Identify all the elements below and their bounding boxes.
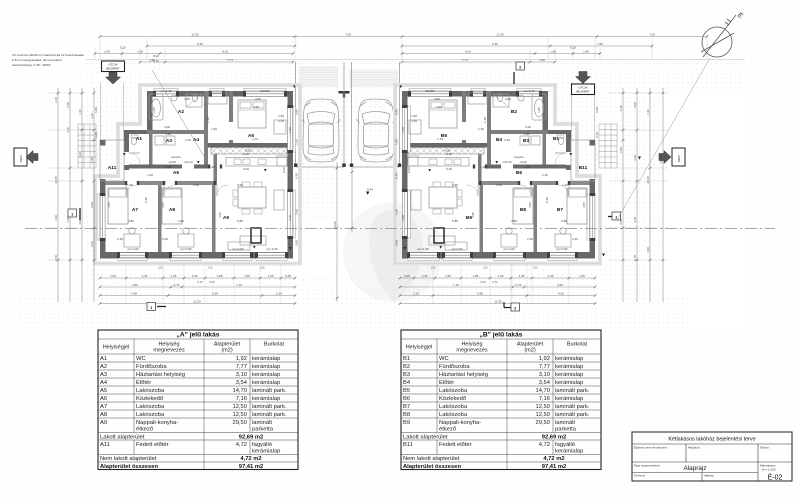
svg-text:3,20: 3,20 [633, 155, 637, 161]
svg-text:KERT: KERT [19, 155, 23, 163]
svg-text:6,70: 6,70 [54, 255, 58, 261]
svg-text:6,20: 6,20 [446, 167, 452, 171]
svg-text:A3: A3 [100, 372, 107, 378]
svg-text:BEJÁRAT: BEJÁRAT [576, 90, 589, 94]
svg-text:4,85: 4,85 [471, 212, 475, 218]
svg-text:0,90: 0,90 [395, 240, 399, 246]
svg-text:É-02: É-02 [768, 473, 783, 482]
svg-text:4,90: 4,90 [54, 215, 58, 221]
svg-text:laminált park.: laminált park. [555, 388, 590, 394]
svg-text:A9: A9 [223, 215, 229, 221]
svg-text:2,05: 2,05 [90, 241, 94, 247]
svg-text:2,35: 2,35 [548, 274, 554, 278]
svg-text:1,65: 1,65 [579, 274, 585, 278]
svg-text:BEJÁRAT: BEJÁRAT [106, 67, 119, 71]
svg-text:Nem lakott alapterület: Nem lakott alapterület [403, 456, 460, 462]
svg-text:A4: A4 [100, 380, 108, 386]
svg-text:97,41 m2: 97,41 m2 [542, 464, 567, 470]
svg-text:5,90: 5,90 [477, 291, 483, 295]
svg-text:B5: B5 [403, 388, 410, 394]
svg-text:2,10: 2,10 [185, 138, 191, 142]
svg-text:1,30: 1,30 [211, 127, 217, 131]
svg-text:2,10: 2,10 [243, 152, 249, 156]
svg-text:Lakott alapterület: Lakott alapterület [403, 434, 448, 440]
svg-text:A11: A11 [100, 442, 110, 448]
svg-text:kerámialap: kerámialap [252, 448, 280, 454]
svg-text:0,70: 0,70 [174, 283, 180, 287]
svg-text:1,10: 1,10 [437, 137, 443, 141]
svg-text:1,50: 1,50 [550, 49, 556, 53]
svg-text:pm 2,40: pm 2,40 [418, 247, 429, 251]
svg-text:7,71: 7,71 [462, 58, 468, 62]
svg-text:konyha: konyha [171, 155, 181, 159]
svg-text:4,60: 4,60 [434, 97, 440, 101]
svg-text:Burkolat: Burkolat [264, 342, 285, 348]
svg-text:3,54: 3,54 [236, 380, 248, 386]
svg-text:1,50: 1,50 [260, 267, 265, 270]
svg-text:8,10: 8,10 [465, 49, 471, 53]
svg-text:Fürdőszoba: Fürdőszoba [136, 364, 167, 370]
svg-text:1,60: 1,60 [539, 58, 545, 62]
svg-text:0,70: 0,70 [197, 280, 203, 284]
svg-text:1,40: 1,40 [127, 183, 133, 187]
svg-text:pm 0,90: pm 0,90 [557, 247, 568, 251]
svg-text:laminált park.: laminált park. [252, 412, 287, 418]
svg-text:1,10: 1,10 [252, 137, 258, 141]
svg-text:1,50: 1,50 [295, 139, 299, 145]
svg-text:1,65: 1,65 [110, 274, 116, 278]
svg-text:4,90: 4,90 [646, 247, 650, 253]
svg-text:4,60: 4,60 [436, 105, 442, 109]
svg-text:7,77: 7,77 [236, 364, 247, 370]
svg-text:1,65: 1,65 [445, 274, 451, 278]
svg-text:12,30: 12,30 [496, 32, 504, 36]
svg-text:1,40: 1,40 [562, 183, 568, 187]
svg-text:4,50: 4,50 [132, 283, 138, 287]
svg-text:4,60: 4,60 [255, 97, 261, 101]
svg-text:2,40: 2,40 [288, 215, 292, 221]
svg-text:B2: B2 [511, 109, 517, 115]
svg-text:2,40: 2,40 [395, 209, 399, 215]
svg-text:B11: B11 [403, 442, 413, 448]
svg-text:4,75: 4,75 [66, 127, 70, 133]
svg-text:Közlekedő: Közlekedő [136, 396, 163, 402]
svg-text:+10,10: +10,10 [183, 160, 193, 164]
svg-text:12,30: 12,30 [193, 299, 201, 303]
svg-text:7,77: 7,77 [539, 364, 550, 370]
svg-text:Előtér: Előtér [136, 380, 151, 386]
svg-text:90/150: 90/150 [425, 89, 435, 93]
svg-text:B9: B9 [403, 420, 410, 426]
svg-text:2,60: 2,60 [619, 147, 623, 153]
svg-text:0,90: 0,90 [452, 183, 458, 187]
svg-text:étkező: étkező [439, 426, 456, 432]
svg-text:1,35: 1,35 [268, 274, 274, 278]
svg-text:Lakószoba: Lakószoba [136, 388, 165, 394]
svg-text:1,40: 1,40 [209, 165, 215, 169]
svg-text:29,50: 29,50 [535, 420, 550, 426]
svg-text:0,30: 0,30 [282, 167, 286, 173]
svg-text:Alapterület összesen: Alapterület összesen [100, 464, 158, 470]
svg-text:1,50: 1,50 [278, 114, 284, 118]
svg-text:7,10: 7,10 [453, 283, 459, 287]
svg-text:ø 8 mm kengyelekkel, 20 cm-enk: ø 8 mm kengyelekkel, 20 cm-enként [12, 58, 62, 62]
svg-text:kerámialap: kerámialap [555, 380, 583, 386]
svg-text:1,50: 1,50 [483, 267, 488, 270]
svg-text:0,20: 0,20 [480, 280, 486, 284]
svg-text:2,35: 2,35 [142, 274, 148, 278]
svg-text:3,16: 3,16 [646, 109, 650, 115]
svg-text:Aláírás:: Aláírás: [704, 474, 714, 478]
svg-text:kerámialap: kerámialap [252, 372, 280, 378]
svg-text:4,72 m2: 4,72 m2 [240, 456, 261, 462]
svg-text:2,00: 2,00 [633, 102, 637, 108]
svg-text:Tervező:: Tervező: [634, 474, 646, 478]
svg-text:Közlekedő: Közlekedő [439, 396, 466, 402]
svg-text:1,50: 1,50 [411, 114, 417, 118]
svg-text:6,20: 6,20 [243, 167, 249, 171]
svg-text:8,10: 8,10 [153, 54, 159, 58]
svg-text:A3: A3 [166, 138, 172, 144]
svg-text:1,50: 1,50 [208, 267, 213, 270]
svg-text:B7: B7 [403, 404, 410, 410]
svg-text:4,30: 4,30 [165, 165, 171, 169]
svg-text:0,95: 0,95 [404, 274, 410, 278]
svg-text:Helyiségjel: Helyiségjel [103, 345, 130, 351]
svg-text:B3: B3 [403, 372, 410, 378]
svg-text:Vb. koszorú 40x40 cm zsaluzott: Vb. koszorú 40x40 cm zsaluzott 4ø 12 hos… [12, 53, 84, 57]
svg-text:Fedett előtér: Fedett előtér [439, 442, 472, 448]
svg-text:Alapterület összesen: Alapterület összesen [403, 464, 461, 470]
svg-text:2,60: 2,60 [90, 157, 94, 163]
svg-text:laminált: laminált [555, 420, 575, 426]
svg-text:2,40: 2,40 [295, 209, 299, 215]
svg-text:A5: A5 [100, 388, 107, 394]
svg-text:A9: A9 [100, 420, 107, 426]
svg-text:A7: A7 [132, 207, 138, 213]
svg-text:kerámialap: kerámialap [252, 356, 280, 362]
svg-text:Megbízó:: Megbízó: [688, 446, 701, 450]
svg-text:3,80: 3,80 [561, 219, 567, 223]
svg-text:0,30: 0,30 [395, 173, 399, 179]
svg-text:2,00: 2,00 [164, 125, 170, 129]
svg-text:1,50: 1,50 [395, 139, 399, 145]
svg-text:4,30: 4,30 [524, 165, 530, 169]
svg-text:1,65: 1,65 [244, 274, 250, 278]
svg-text:fagyálló: fagyálló [555, 442, 575, 448]
svg-text:1,85: 1,85 [473, 274, 479, 278]
svg-text:4,50: 4,50 [505, 97, 511, 101]
svg-text:6,85: 6,85 [452, 219, 458, 223]
svg-text:2,10: 2,10 [446, 152, 452, 156]
svg-text:kerámialap: kerámialap [555, 364, 583, 370]
svg-text:3,55: 3,55 [582, 202, 586, 208]
svg-text:4,50: 4,50 [557, 283, 563, 287]
svg-text:7,16: 7,16 [539, 396, 550, 402]
svg-text:5,10: 5,10 [120, 46, 126, 50]
svg-text:B4: B4 [403, 380, 411, 386]
svg-text:Háztartási helyiség: Háztartási helyiség [439, 372, 488, 378]
svg-text:1,92: 1,92 [539, 356, 550, 362]
svg-text:15,00: 15,00 [333, 221, 337, 229]
svg-text:2,20: 2,20 [117, 237, 123, 241]
svg-text:konyha: konyha [514, 155, 524, 159]
svg-text:1,50: 1,50 [597, 42, 603, 46]
svg-text:3,80: 3,80 [128, 219, 134, 223]
svg-text:4,72: 4,72 [236, 442, 247, 448]
svg-text:B7: B7 [557, 207, 563, 213]
svg-text:3,80: 3,80 [178, 219, 184, 223]
svg-text:megnevezés: megnevezés [153, 348, 184, 354]
svg-text:pm 1,40: pm 1,40 [161, 89, 172, 93]
svg-text:2,10: 2,10 [54, 97, 58, 103]
svg-text:1,35: 1,35 [171, 274, 177, 278]
svg-text:3,10: 3,10 [539, 372, 550, 378]
svg-text:6,44: 6,44 [367, 188, 373, 192]
svg-text:Nappali-konyha-: Nappali-konyha- [439, 420, 481, 426]
svg-text:Építtető neve és lakcíme:: Építtető neve és lakcíme: [634, 445, 668, 450]
svg-text:2,20: 2,20 [572, 237, 578, 241]
svg-text:1,35: 1,35 [422, 274, 428, 278]
svg-text:pm 0,90: pm 0,90 [504, 247, 515, 251]
svg-text:29,50: 29,50 [232, 420, 247, 426]
svg-text:3,00: 3,00 [90, 202, 94, 208]
svg-text:2,30: 2,30 [524, 132, 530, 136]
svg-text:KERT: KERT [677, 155, 681, 163]
svg-text:7,00: 7,00 [649, 32, 655, 36]
svg-text:kerámialap: kerámialap [555, 448, 583, 454]
svg-text:7,00: 7,00 [345, 32, 351, 36]
svg-text:A8: A8 [169, 207, 175, 213]
svg-text:3,55: 3,55 [107, 202, 111, 208]
svg-text:kerámialap: kerámialap [252, 364, 280, 370]
svg-text:3,10: 3,10 [236, 372, 247, 378]
svg-text:B8: B8 [520, 207, 526, 213]
svg-text:1,85: 1,85 [537, 107, 541, 113]
svg-text:B11: B11 [579, 165, 588, 171]
svg-text:pm 1,40: pm 1,40 [524, 89, 535, 93]
svg-text:étkező: étkező [136, 426, 153, 432]
svg-text:0,90: 0,90 [295, 109, 299, 115]
svg-text:laminált park.: laminált park. [252, 388, 287, 394]
svg-text:1,20: 1,20 [542, 173, 548, 177]
svg-text:97,41 m2: 97,41 m2 [239, 464, 264, 470]
svg-text:0,95: 0,95 [285, 274, 291, 278]
svg-text:3,20: 3,20 [78, 152, 82, 158]
svg-text:A1: A1 [136, 136, 142, 142]
svg-text:7,16: 7,16 [236, 396, 247, 402]
svg-text:3,16: 3,16 [78, 109, 82, 115]
svg-text:90/150: 90/150 [260, 89, 270, 93]
svg-text:laminált: laminált [252, 420, 272, 426]
svg-text:„B” jelű lakás: „B” jelű lakás [480, 332, 523, 339]
svg-text:2,10: 2,10 [504, 138, 510, 142]
svg-text:pm 2,40: pm 2,40 [267, 247, 278, 251]
svg-text:0,30: 0,30 [407, 167, 411, 173]
svg-text:0,70: 0,70 [516, 283, 522, 287]
svg-text:6,85: 6,85 [237, 219, 243, 223]
svg-text:2,10: 2,10 [595, 132, 599, 138]
svg-text:Fedett előtér: Fedett előtér [136, 442, 169, 448]
svg-text:Helyiségjel: Helyiségjel [406, 345, 433, 351]
svg-text:1,20: 1,20 [147, 173, 153, 177]
svg-text:1,50: 1,50 [158, 267, 163, 270]
svg-text:A2: A2 [100, 364, 107, 370]
svg-text:„A” jelű lakás: „A” jelű lakás [177, 332, 220, 339]
svg-text:0,90: 0,90 [237, 183, 243, 187]
svg-text:B2: B2 [403, 364, 410, 370]
svg-text:kerámialap: kerámialap [252, 380, 280, 386]
svg-text:A6: A6 [173, 170, 179, 176]
svg-text:Lakószoba: Lakószoba [439, 412, 468, 418]
svg-text:(m2): (m2) [524, 348, 535, 354]
svg-text:4,70: 4,70 [633, 217, 637, 223]
svg-text:6,70: 6,70 [633, 255, 637, 261]
svg-text:+0,00: +0,00 [519, 160, 527, 164]
svg-text:laminált park.: laminált park. [555, 412, 590, 418]
svg-text:Kétlakásos lakóház bejelentési: Kétlakásos lakóház bejelentési terve [668, 437, 755, 443]
svg-text:pm 0,90: pm 0,90 [233, 247, 244, 251]
svg-text:betonminőség: C 25– 30/KK: betonminőség: C 25– 30/KK [12, 63, 52, 67]
svg-text:2,00: 2,00 [525, 125, 531, 129]
svg-text:Rajz megnevezése:: Rajz megnevezése: [634, 464, 661, 468]
svg-text:fagyálló: fagyálló [252, 442, 272, 448]
svg-text:1,92: 1,92 [236, 356, 247, 362]
svg-text:B3: B3 [523, 138, 529, 144]
svg-text:(m2): (m2) [221, 348, 232, 354]
svg-text:1,40: 1,40 [480, 165, 486, 169]
svg-text:14,70: 14,70 [535, 388, 550, 394]
svg-text:kerámialap: kerámialap [555, 396, 583, 402]
svg-text:1,35: 1,35 [519, 274, 525, 278]
svg-text:Lakószoba: Lakószoba [439, 404, 468, 410]
svg-text:Burkolat: Burkolat [567, 342, 588, 348]
svg-text:1,40: 1,40 [193, 183, 199, 187]
svg-text:4,30: 4,30 [131, 291, 137, 295]
svg-text:1,85: 1,85 [217, 274, 223, 278]
svg-text:B6: B6 [403, 396, 410, 402]
svg-text:4,85: 4,85 [218, 212, 222, 218]
svg-text:12,50: 12,50 [535, 412, 550, 418]
svg-text:A8: A8 [100, 412, 107, 418]
svg-text:Lakószoba: Lakószoba [136, 404, 165, 410]
svg-text:4,72 m2: 4,72 m2 [543, 456, 564, 462]
svg-text:6,10: 6,10 [153, 59, 159, 63]
svg-text:4,70: 4,70 [66, 217, 70, 223]
svg-text:2,20: 2,20 [162, 237, 168, 241]
svg-text:parketta: parketta [555, 426, 577, 432]
svg-text:0,30: 0,30 [295, 173, 299, 179]
svg-text:pm 0,90: pm 0,90 [181, 247, 192, 251]
svg-text:+0,00: +0,00 [168, 160, 176, 164]
svg-text:2,20: 2,20 [527, 237, 533, 241]
svg-text:Lakószoba: Lakószoba [136, 412, 165, 418]
svg-text:Háztartási helyiség: Háztartási helyiség [136, 372, 185, 378]
svg-text:9,30: 9,30 [492, 42, 498, 46]
svg-text:Dátum:: Dátum: [760, 446, 770, 450]
svg-text:1,50: 1,50 [137, 49, 143, 53]
svg-text:2,10: 2,10 [90, 113, 94, 119]
svg-text:Fürdőszoba: Fürdőszoba [439, 364, 470, 370]
svg-text:92,69 m2: 92,69 m2 [239, 434, 264, 440]
svg-text:7,10: 7,10 [236, 283, 242, 287]
svg-text:1,00: 1,00 [595, 107, 599, 113]
svg-text:8,10: 8,10 [222, 49, 228, 53]
svg-text:pm 0,90: pm 0,90 [452, 247, 463, 251]
svg-text:1,20: 1,20 [278, 119, 284, 123]
svg-text:2,10: 2,10 [619, 105, 623, 111]
svg-text:WC: WC [136, 356, 146, 362]
svg-text:1,35: 1,35 [192, 274, 198, 278]
svg-text:4,60: 4,60 [253, 105, 259, 109]
svg-text:A1: A1 [100, 356, 107, 362]
svg-text:12,50: 12,50 [232, 404, 247, 410]
svg-text:megnevezés: megnevezés [456, 348, 487, 354]
svg-text:92,69 m2: 92,69 m2 [542, 434, 567, 440]
svg-text:1,30: 1,30 [478, 127, 484, 131]
svg-text:1,40: 1,40 [104, 49, 110, 53]
svg-text:2,10: 2,10 [94, 132, 98, 138]
svg-text:laminált park.: laminált park. [252, 404, 287, 410]
svg-text:4,50: 4,50 [184, 97, 190, 101]
svg-text:3,55: 3,55 [528, 202, 532, 208]
svg-text:9,30: 9,30 [197, 42, 203, 46]
svg-text:0,20: 0,20 [209, 280, 215, 284]
svg-text:WC: WC [439, 356, 449, 362]
svg-text:3,80: 3,80 [511, 219, 517, 223]
svg-text:4,72: 4,72 [539, 442, 550, 448]
svg-text:+10,10: +10,10 [502, 160, 512, 164]
svg-text:Alaprajz: Alaprajz [683, 465, 706, 472]
svg-text:B1: B1 [553, 136, 559, 142]
svg-text:kerámialap: kerámialap [555, 372, 583, 378]
svg-text:5,90: 5,90 [212, 291, 218, 295]
svg-text:14,70: 14,70 [232, 388, 247, 394]
svg-text:2,30: 2,30 [165, 132, 171, 136]
svg-text:12,30: 12,30 [494, 299, 502, 303]
svg-text:0,10: 0,10 [144, 197, 148, 203]
svg-text:0,10: 0,10 [545, 197, 549, 203]
svg-text:10,60: 10,60 [646, 176, 650, 184]
svg-text:Lakott alapterület: Lakott alapterület [100, 434, 145, 440]
svg-text:B4: B4 [496, 137, 502, 143]
svg-text:12,50: 12,50 [535, 404, 550, 410]
svg-text:1,40: 1,40 [496, 183, 502, 187]
svg-text:2,10: 2,10 [206, 117, 210, 123]
svg-text:B6: B6 [516, 170, 522, 176]
svg-text:kerámialap: kerámialap [252, 396, 280, 402]
svg-text:A2: A2 [178, 109, 184, 115]
svg-text:Előtér: Előtér [439, 380, 454, 386]
svg-text:3,54: 3,54 [539, 380, 551, 386]
svg-text:2,10: 2,10 [276, 291, 282, 295]
svg-text:7,71: 7,71 [227, 58, 233, 62]
svg-text:1,35: 1,35 [498, 274, 504, 278]
svg-text:1,50: 1,50 [431, 267, 436, 270]
svg-text:4,30: 4,30 [558, 291, 564, 295]
svg-text:B8: B8 [403, 412, 410, 418]
svg-text:A11: A11 [108, 165, 117, 171]
svg-text:2,00: 2,00 [66, 102, 70, 108]
svg-text:0,90: 0,90 [295, 240, 299, 246]
svg-text:12,30: 12,30 [191, 32, 199, 36]
svg-text:10,60: 10,60 [54, 176, 58, 184]
svg-text:pm 0,90: pm 0,90 [128, 247, 139, 251]
svg-text:1,00: 1,00 [94, 107, 98, 113]
svg-text:0,90: 0,90 [395, 109, 399, 115]
svg-text:5,10: 5,10 [570, 46, 576, 50]
svg-text:1,50: 1,50 [288, 127, 292, 133]
